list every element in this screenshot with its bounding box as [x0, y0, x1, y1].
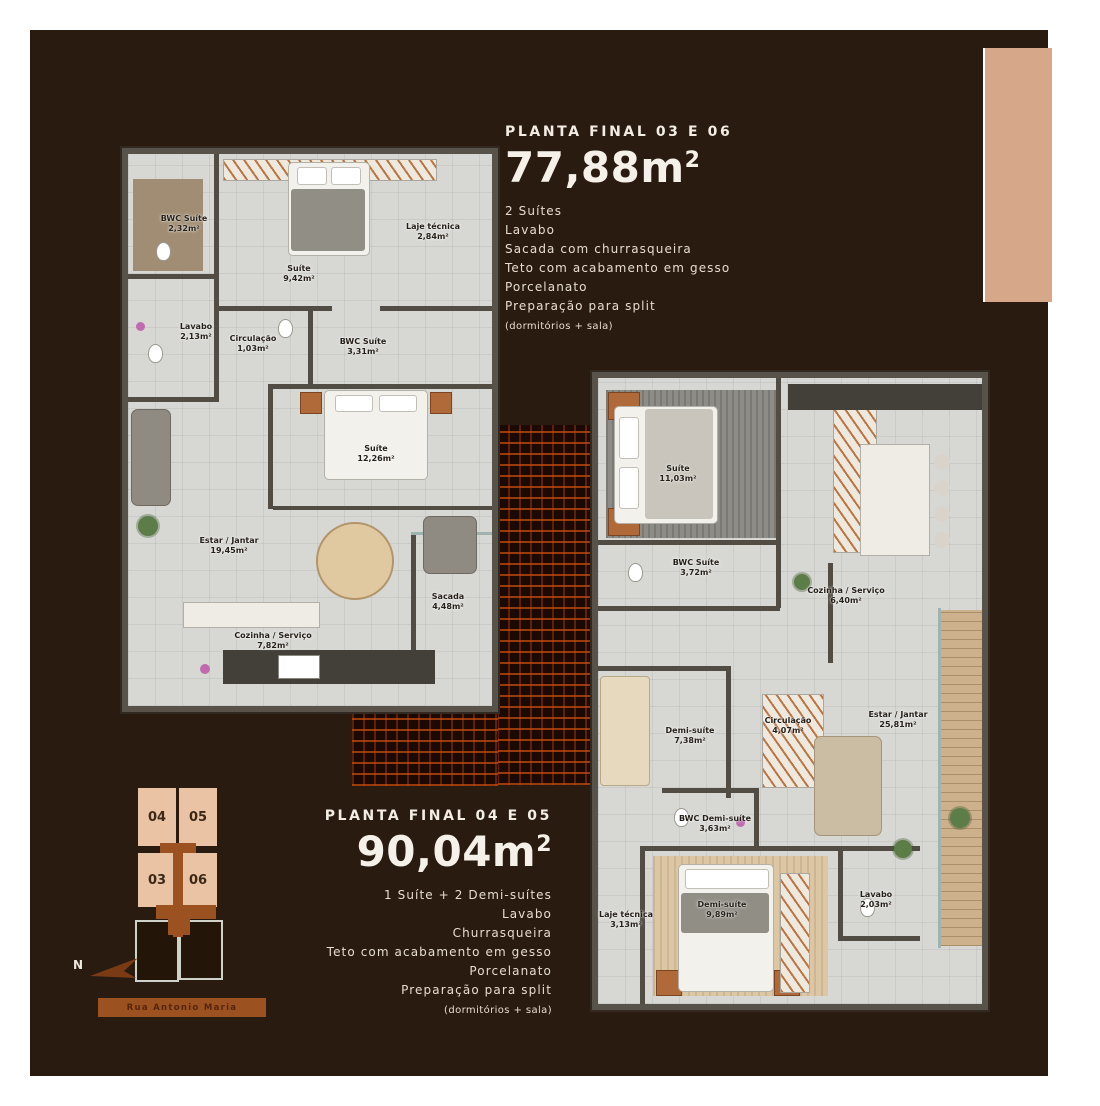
- plan2-text-block: PLANTA FINAL 04 E 05 90,04m2 1 Suíte + 2…: [312, 808, 552, 1020]
- north-label: N: [73, 958, 83, 972]
- wall: [843, 936, 920, 941]
- toilet: [628, 563, 643, 582]
- toilet: [148, 344, 163, 363]
- nightstand: [430, 392, 452, 414]
- floorplan-04-05: Suíte11,03m² BWC Suíte3,72m² Cozinha / S…: [592, 372, 988, 1010]
- feature-item: Porcelanato: [312, 962, 552, 981]
- pillow: [335, 395, 373, 412]
- feature-note: (dormitórios + sala): [312, 1001, 552, 1020]
- room-label-demi-suite-1: Demi-suíte7,38m²: [666, 726, 715, 746]
- pillow: [619, 467, 639, 509]
- wall: [380, 306, 492, 311]
- room-label-cozinha: Cozinha / Serviço7,82m²: [234, 631, 311, 651]
- plan1-area: 77,88m2: [505, 146, 865, 190]
- plan2-title: PLANTA FINAL 04 E 05: [312, 808, 552, 824]
- double-bed: [324, 390, 428, 480]
- wall: [268, 384, 492, 389]
- room-label-bwc-suite-2: BWC Suíte3,31m²: [340, 337, 387, 357]
- keyplan-unit-06: 06: [179, 853, 217, 907]
- armchairs: [131, 409, 171, 506]
- dining-table: [316, 522, 394, 600]
- pillow: [619, 417, 639, 459]
- poster-page: PLANTA FINAL 03 E 06 77,88m2 2 Suítes La…: [0, 0, 1100, 1106]
- feature-item: Porcelanato: [505, 278, 865, 297]
- room-label-demi-suite-2: Demi-suíte9,89m²: [698, 900, 747, 920]
- nightstand: [300, 392, 322, 414]
- wall: [308, 311, 313, 389]
- double-bed: [678, 864, 774, 992]
- plan1-text-block: PLANTA FINAL 03 E 06 77,88m2 2 Suítes La…: [505, 124, 865, 336]
- room-label-lavabo: Lavabo2,13m²: [180, 322, 212, 342]
- wall: [754, 788, 759, 850]
- plan1-features: 2 Suítes Lavabo Sacada com churrasqueira…: [505, 202, 865, 336]
- room-label-laje-tecnica: Laje técnica3,13m²: [599, 910, 653, 930]
- keyplan-core-base: [156, 905, 216, 919]
- plan2-features: 1 Suíte + 2 Demi-suítes Lavabo Churrasqu…: [312, 886, 552, 1020]
- wall: [838, 851, 843, 941]
- room-label-circulacao: Circulação4,07m²: [765, 716, 812, 736]
- pillow: [685, 869, 769, 889]
- wardrobe: [780, 873, 810, 993]
- feature-item: Teto com acabamento em gesso: [505, 259, 865, 278]
- wall: [776, 378, 781, 608]
- plan2-area: 90,04m2: [312, 830, 552, 874]
- room-label-estar-jantar: Estar / Jantar19,45m²: [199, 536, 258, 556]
- cobogo-brick-texture: [352, 712, 498, 786]
- cobogo-brick-texture: [497, 425, 592, 785]
- peach-accent-block: [983, 48, 1052, 302]
- wall: [828, 563, 833, 663]
- kitchen-island: [183, 602, 320, 628]
- plant: [138, 516, 158, 536]
- feature-note: (dormitórios + sala): [505, 317, 865, 336]
- street-banner: Rua Antonio Maria: [98, 998, 266, 1017]
- room-label-cozinha: Cozinha / Serviço6,40m²: [807, 586, 884, 606]
- feature-item: Preparação para split: [312, 981, 552, 1000]
- feature-item: Lavabo: [505, 221, 865, 240]
- toilet: [278, 319, 293, 338]
- feature-item: Churrasqueira: [312, 924, 552, 943]
- double-bed: [288, 162, 370, 256]
- room-label-circulacao: Circulação1,03m²: [230, 334, 277, 354]
- room-label-bwc-suite: BWC Suíte3,72m²: [673, 558, 720, 578]
- feature-item: 1 Suíte + 2 Demi-suítes: [312, 886, 552, 905]
- wall: [128, 397, 219, 402]
- room-label-suite: Suíte9,42m²: [283, 264, 315, 284]
- keyplan-unit-05: 05: [179, 788, 217, 846]
- room-label-suite-2: Suíte12,26m²: [357, 444, 394, 464]
- kitchen-counter: [223, 650, 435, 684]
- plan1-title: PLANTA FINAL 03 E 06: [505, 124, 865, 140]
- room-label-bwc-suite: BWC Suíte2,32m²: [161, 214, 208, 234]
- wall: [214, 154, 219, 397]
- pillow: [297, 167, 327, 185]
- stool: [934, 506, 950, 522]
- flower-accent: [136, 322, 145, 331]
- feature-item: Lavabo: [312, 905, 552, 924]
- wall: [598, 606, 780, 611]
- wall: [214, 306, 332, 311]
- wall: [273, 506, 492, 510]
- plant: [950, 808, 970, 828]
- feature-item: Preparação para split: [505, 297, 865, 316]
- keyplan-unit-03: 03: [138, 853, 176, 907]
- room-label-estar-jantar: Estar / Jantar25,81m²: [868, 710, 927, 730]
- pillow: [331, 167, 361, 185]
- blanket: [291, 189, 365, 251]
- room-label-suite: Suíte11,03m²: [659, 464, 696, 484]
- sink: [278, 655, 320, 679]
- north-arrow-icon: [88, 956, 140, 980]
- room-label-lavabo: Lavabo2,03m²: [860, 890, 892, 910]
- keyplan-core-base: [168, 919, 190, 935]
- balcony-deck: [941, 610, 982, 946]
- wall: [598, 666, 730, 671]
- feature-item: Teto com acabamento em gesso: [312, 943, 552, 962]
- wall: [662, 788, 758, 793]
- kitchen-counter: [788, 384, 982, 410]
- keyplan-unit-04: 04: [138, 788, 176, 846]
- wall: [268, 389, 273, 509]
- single-bed: [600, 676, 650, 786]
- floorplan-03-06: BWC Suíte2,32m² Suíte9,42m² Laje técnica…: [122, 148, 498, 712]
- pillow: [379, 395, 417, 412]
- wall: [726, 666, 731, 798]
- kitchen-island: [860, 444, 930, 556]
- room-label-bwc-demi: BWC Demi-suíte3,63m²: [679, 814, 751, 834]
- room-label-laje-tecnica: Laje técnica2,84m²: [406, 222, 460, 242]
- flower-accent: [200, 664, 210, 674]
- feature-item: 2 Suítes: [505, 202, 865, 221]
- wall: [598, 540, 780, 545]
- wall: [128, 274, 214, 279]
- stool: [934, 480, 950, 496]
- feature-item: Sacada com churrasqueira: [505, 240, 865, 259]
- room-label-sacada: Sacada4,48m²: [432, 592, 464, 612]
- toilet: [156, 242, 171, 261]
- stool: [934, 532, 950, 548]
- plant: [894, 840, 912, 858]
- sofa: [423, 516, 477, 574]
- sofa: [814, 736, 882, 836]
- stool: [934, 454, 950, 470]
- wall: [640, 846, 920, 851]
